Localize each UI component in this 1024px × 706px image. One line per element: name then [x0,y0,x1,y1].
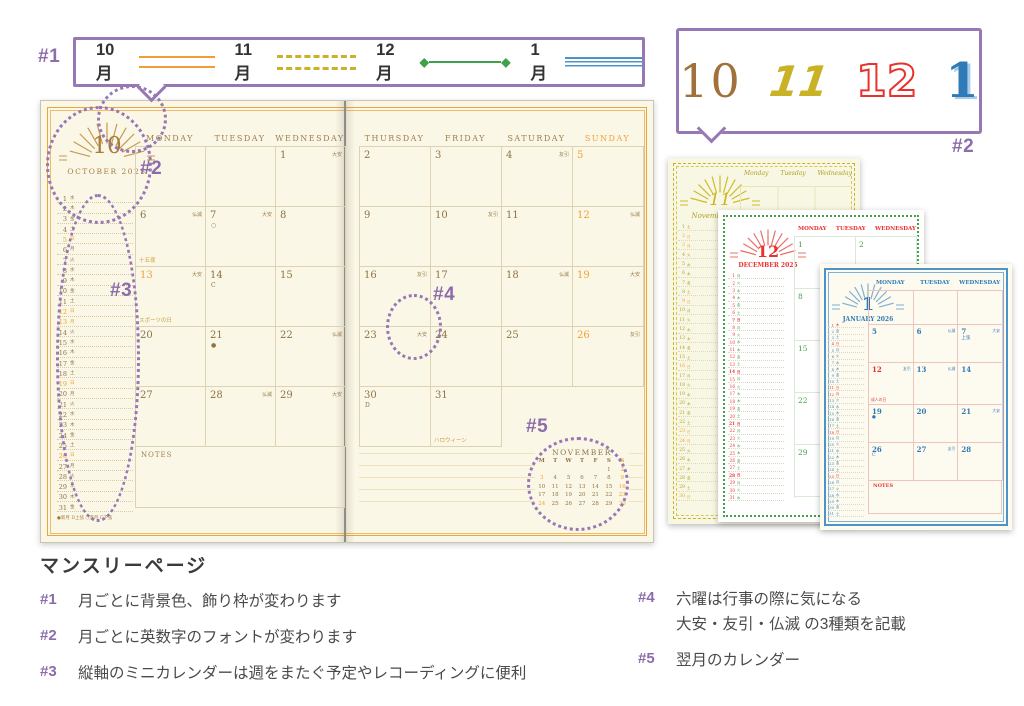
mini-day-number: 24 [57,433,67,440]
mini-day-weekday: 火 [687,383,691,388]
mini-day-weekday: 木 [836,499,839,503]
mini-day-weekday: 金 [737,303,740,308]
mini-day-row: 20土 [728,412,784,419]
mini-day-weekday: 木 [687,402,691,407]
mini-day-row: 16火 [728,383,784,390]
mini-day-weekday: 水 [687,263,691,268]
mini-day-number: 16 [828,418,834,422]
mini-day-weekday: 水 [737,444,740,449]
rokuyo-label: 大安 [630,271,640,278]
mini-day-number: 22 [57,412,67,419]
weekday-headers-left: MONDAYTUESDAYWEDNESDAY [135,134,345,143]
mini-day-weekday: 火 [70,402,75,408]
mini-day-number: 10 [678,309,685,314]
mini-day-row: 7火 [57,255,133,265]
mini-day-weekday: 水 [737,496,740,501]
mini-day-weekday: 金 [70,433,75,439]
day-note: 十五夜 [139,256,156,264]
mini-day-weekday: 火 [70,258,75,264]
next-month-day: 13 [575,483,588,492]
calendar-cell: 20 [136,327,206,387]
mini-day-number: 9 [728,333,735,337]
december-header: WEDNESDAY [875,226,916,232]
mini-day-weekday: 日 [70,453,75,459]
moon-phase-legend: ●新月 D上弦 ○満月 C下弦 [57,515,112,521]
mini-day-weekday: 土 [687,225,691,230]
mini-day-number: 20 [57,391,67,398]
legend-item: 11月 [235,41,357,84]
next-month-day: 7 [589,474,602,483]
description-item-text: 縦軸のミニカレンダーは週をまたぐ予定やレコーディングに便利 [78,662,526,687]
mini-day-number: 18 [828,431,834,435]
description-item: #4六曜は行事の際に気になる大安・友引・仏滅 の3種類を記載 [638,588,906,638]
description-item-text: 翌月のカレンダー [676,649,800,674]
date-number: 30 [364,390,377,401]
next-month-day: 17 [535,491,548,500]
mini-day-row: 31水 [728,494,784,501]
empty [589,466,602,475]
mini-day-number: 31 [57,505,67,512]
january-page: 1 JANUARY 2026 MONDAYTUESDAYWEDNESDAY 56… [820,264,1012,530]
next-month-day: 29 [602,500,615,509]
side-date: 2 [859,240,864,249]
calendar-cell: 22仏滅 [276,327,346,387]
mini-day-weekday: 日 [687,235,691,240]
mini-day-weekday: 月 [70,464,75,470]
mini-day-number: 25 [828,475,834,479]
mini-day-number: 19 [828,437,834,441]
calendar-cell: 13大安スポーツの日 [136,267,206,327]
date-number: 2 [364,150,370,161]
mini-day-number: 23 [57,422,67,429]
mini-day-weekday: 土 [836,512,839,516]
calendar-cell: 16友引 [360,267,431,327]
mini-day-number: 21 [57,402,67,409]
mini-day-number: 8 [828,368,834,372]
next-month-day: 22 [602,491,615,500]
mini-day-row: 11木 [728,346,784,353]
date-number: 3 [435,150,441,161]
mini-day-number: 2 [678,235,685,240]
mini-day-weekday: 月 [687,439,691,444]
date-number: 20 [917,407,927,416]
mini-day-weekday: 火 [737,385,740,390]
mini-day-number: 19 [678,393,685,398]
mini-day-number: 11 [728,348,735,352]
calendar-cell: 27 [136,387,206,447]
next-month-day: 9 [616,474,629,483]
next-month-day: 12 [562,483,575,492]
mini-day-number: 21 [828,449,834,453]
mini-day-number: 14 [728,370,735,374]
date-number: 22 [280,330,293,341]
description-item-number: #4 [638,588,663,638]
mini-day-weekday: 月 [687,374,691,379]
mini-day-weekday: 月 [737,481,740,486]
mini-day-number: 25 [678,449,685,454]
mini-day-row: 12日 [57,306,133,316]
mini-day-row: 17水 [728,390,784,397]
date-number: 23 [364,330,377,341]
rokuyo-label: 仏滅 [262,391,272,398]
mini-day-weekday: 日 [836,430,839,434]
mini-day-weekday: 水 [70,484,75,490]
mini-day-number: 7 [828,361,834,365]
description-item-number: #2 [40,626,65,651]
mini-day-weekday: 金 [70,361,75,367]
mini-day-weekday: 金 [687,476,691,481]
mini-day-number: 1 [678,226,685,231]
mini-day-number: 26 [728,459,735,463]
january-header: WEDNESDAY [957,280,1002,286]
mini-day-weekday: 水 [836,405,839,409]
next-month-day: 6 [575,474,588,483]
mini-day-row: 29水 [57,481,133,491]
mini-day-weekday: 金 [687,411,691,416]
mini-day-weekday: 土 [836,468,839,472]
notes-box: NOTES [135,446,345,508]
page: { "colors":{"purple":"#9678b4","purple_t… [0,0,1024,706]
line-bar [429,61,501,64]
date-number: 5 [872,327,877,336]
mini-day-number: 10 [728,341,735,345]
font-sample-bubble: 1011121 [676,28,982,134]
mini-day-number: 24 [728,444,735,448]
calendar-cell [206,147,276,207]
mini-day-number: 13 [678,337,685,342]
mini-day-weekday: 日 [737,370,740,375]
mini-day-number: 20 [728,415,735,419]
annotation-label-2b: #2 [952,136,974,158]
legend-month-label: 11月 [235,41,269,84]
mini-day-row: 18木 [728,398,784,405]
mini-day-number: 30 [828,506,834,510]
mini-day-row: 13月 [57,317,133,327]
rokuyo-label: 仏滅 [332,331,342,338]
weekday-header: FRIDAY [430,134,501,143]
calendar-cell: 14 [958,363,1003,405]
mini-day-weekday: 日 [836,474,839,478]
next-month-day: 27 [575,500,588,509]
mini-day-weekday: 金 [70,505,75,511]
mini-day-weekday: 土 [70,299,75,305]
calendar-cell: 7大安○ [206,207,276,267]
mini-day-number: 7 [57,258,67,265]
next-month-day: 26 [562,500,575,509]
green-diamond-line-icon: ◆◆ [420,61,511,64]
mini-day-weekday: 土 [687,356,691,361]
mini-day-number: 28 [828,494,834,498]
mini-day-number: 16 [57,350,67,357]
mini-day-weekday: 火 [687,318,691,323]
calendar-cell: 11 [502,207,573,267]
mini-day-weekday: 火 [737,436,740,441]
mini-day-weekday: 日 [836,342,839,346]
mini-day-weekday: 木 [70,278,75,284]
calendar-cell: 25 [502,327,573,387]
mini-day-weekday: 土 [70,371,75,377]
january-mini-list: 1木2金3土4日5月6火7水8木9金10土11日12月13火14水15木16金1… [828,322,864,517]
mini-day-row: 4土 [57,224,133,234]
mini-day-row: 27土 [728,464,784,471]
mini-day-row: 25木 [728,449,784,456]
font-sample-10: 10 [679,54,742,108]
next-month-day: 11 [548,483,561,492]
mini-day-weekday: 日 [737,473,740,478]
mini-day-number: 13 [57,319,67,326]
mini-day-weekday: 水 [737,392,740,397]
annotation-label-1: #1 [38,46,60,68]
date-number: 1 [280,150,286,161]
mini-day-number: 3 [728,289,735,293]
font-sample-12: 12 [856,56,917,107]
mini-day-weekday: 水 [737,289,740,294]
description-item: #2月ごとに英数字のフォントが変わります [40,626,526,651]
mini-day-weekday: 土 [737,466,740,471]
november-header: Tuesday [780,170,805,177]
day-note: ハロウィーン [434,436,467,444]
date-number: 16 [364,270,377,281]
mini-day-number: 11 [678,319,685,324]
next-month-header: W [562,457,575,466]
day-note: スポーツの日 [139,316,172,324]
mini-day-weekday: 日 [836,386,839,390]
empty [575,466,588,475]
mini-day-row: 16木 [57,347,133,357]
mini-day-number: 17 [678,375,685,380]
mini-day-weekday: 木 [836,411,839,415]
mini-day-number: 29 [678,486,685,491]
mini-day-number: 1 [728,274,735,278]
december-headers: MONDAYTUESDAYWEDNESDAY [798,226,916,232]
date-number: 6 [917,327,922,336]
next-month-day: 15 [602,483,615,492]
next-month-day: 14 [589,483,602,492]
mini-day-number: 22 [728,429,735,433]
next-month-day: 23 [616,491,629,500]
mini-day-weekday: 月 [836,480,839,484]
calendar-cell: 5 [869,325,914,363]
rokuyo-label: 友引 [903,366,911,372]
description-item-text: 六曜は行事の際に気になる大安・友引・仏滅 の3種類を記載 [676,588,906,638]
mini-day-number: 1 [828,324,834,328]
mini-day-row: 14火 [57,327,133,337]
mini-day-number: 15 [728,378,735,382]
annotation-label-4: #4 [433,284,455,306]
mini-day-weekday: 火 [836,398,839,402]
side-date: 15 [798,344,808,353]
rokuyo-label: 仏滅 [948,366,956,372]
mini-day-weekday: 土 [737,414,740,419]
calendar-cell: 4友引 [502,147,573,207]
mini-day-number: 12 [678,328,685,333]
mini-day-number: 27 [728,466,735,470]
next-month-day: 4 [548,474,561,483]
next-month-day: 10 [535,483,548,492]
date-number: 10 [435,210,448,221]
mini-day-row: 27月 [57,461,133,471]
mini-day-weekday: 金 [836,505,839,509]
mini-day-number: 18 [678,384,685,389]
mini-day-weekday: 水 [687,328,691,333]
mini-day-weekday: 日 [70,309,75,315]
mini-day-weekday: 金 [836,373,839,377]
calendar-cell: 24 [431,327,502,387]
mini-day-weekday: 日 [687,300,691,305]
next-month-title: NOVEMBER [535,448,629,457]
mini-day-weekday: 水 [687,393,691,398]
mini-day-number: 19 [57,381,67,388]
date-number: 25 [506,330,519,341]
calendar-cell: 31ハロウィーン [431,387,502,447]
calendar-cell [958,291,1003,325]
december-mini-list: 1月2火3水4木5金6土7日8月9火10水11木12金13土14日15月16火1… [728,272,784,501]
mini-day-row: 19日 [57,378,133,388]
mini-day-number: 5 [678,263,685,268]
mini-day-number: 21 [678,412,685,417]
legend-month-label: 12月 [376,41,410,84]
description-list-right: #4六曜は行事の際に気になる大安・友引・仏滅 の3種類を記載#5翌月のカレンダー [638,588,906,673]
weekday-header: WEDNESDAY [275,134,345,143]
mini-day-number: 14 [57,330,67,337]
mini-day-number: 5 [728,304,735,308]
description-item-number: #3 [40,662,65,687]
date-number: 24 [435,330,448,341]
november-header: Monday [744,170,768,177]
mini-day-number: 3 [57,216,67,223]
date-number: 12 [872,365,882,374]
rokuyo-label: 友引 [488,211,498,218]
calendar-cell: 15 [276,267,346,327]
mini-day-row: 31土 [828,511,864,517]
mini-day-number: 6 [678,272,685,277]
mini-day-weekday: 火 [737,281,740,286]
mini-day-row: 5日 [57,234,133,244]
empty [535,466,548,475]
date-number: 28 [210,390,223,401]
mini-day-number: 24 [678,440,685,445]
mini-day-row: 4木 [728,294,784,301]
mini-day-weekday: 土 [687,290,691,295]
mini-day-weekday: 火 [70,474,75,480]
next-month-day: 25 [548,500,561,509]
mini-day-number: 23 [728,437,735,441]
date-number: 13 [140,270,153,281]
mini-day-weekday: 水 [737,340,740,345]
mini-day-weekday: 土 [70,443,75,449]
mini-day-number: 5 [57,237,67,244]
mini-day-number: 11 [57,299,67,306]
mini-day-weekday: 金 [836,417,839,421]
mini-day-number: 10 [57,288,67,295]
moon-icon: ○ [211,222,216,229]
calendar-cell: 20 [914,405,959,443]
date-number: 26 [577,330,590,341]
rokuyo-label: 友引 [559,151,569,158]
weekday-header: TUESDAY [205,134,275,143]
mini-day-row: 2木 [57,203,133,213]
mini-day-weekday: 土 [836,335,839,339]
description-item-text: 月ごとに背景色、飾り枠が変わります [78,590,342,615]
date-number: 9 [364,210,370,221]
mini-day-number: 16 [678,365,685,370]
mini-day-weekday: 日 [687,365,691,370]
rokuyo-label: 仏滅 [192,211,202,218]
calendar-cell: 9 [360,207,431,267]
november-headers: MondayTuesdayWednesday [744,170,852,177]
mini-day-number: 28 [728,474,735,478]
mini-day-number: 12 [828,393,834,397]
mini-day-number: 16 [728,385,735,389]
next-month-header: M [535,457,548,466]
mini-day-row: 22水 [57,409,133,419]
calendar-cell: 6仏滅 [914,325,959,363]
weekday-headers-right: THURSDAYFRIDAYSATURDAYSUNDAY [359,134,643,143]
rokuyo-label: 大安 [192,271,202,278]
mini-day-number: 12 [57,309,67,316]
mini-day-number: 26 [828,481,834,485]
date-number: 28 [961,445,971,454]
mini-day-row: 1月 [728,272,784,279]
empty [562,466,575,475]
rokuyo-label: 大安 [262,211,272,218]
mini-day-weekday: 月 [70,320,75,326]
mini-day-weekday: 水 [70,196,75,202]
next-month-header: T [548,457,561,466]
next-month-day: 3 [535,474,548,483]
mini-day-weekday: 木 [737,451,740,456]
mini-day-number: 27 [828,487,834,491]
mini-day-weekday: 水 [70,340,75,346]
legend-month-label: 10月 [96,41,130,84]
mini-day-row: 3金 [57,214,133,224]
mini-day-number: 7 [678,282,685,287]
mini-day-weekday: 土 [737,362,740,367]
next-month-day: 2 [616,466,629,475]
mini-day-weekday: 水 [836,493,839,497]
november-header: Wednesday [818,170,852,177]
mini-day-row: 26金 [728,457,784,464]
mini-day-number: 17 [728,392,735,396]
mini-day-number: 26 [57,453,67,460]
mini-day-weekday: 金 [737,407,740,412]
next-month-header: T [575,457,588,466]
mini-day-row: 30火 [728,486,784,493]
calendar-cell: 12友引成人の日 [869,363,914,405]
mini-day-weekday: 土 [737,311,740,316]
date-number: 5 [577,150,583,161]
mini-day-weekday: 土 [70,227,75,233]
next-month-day: 18 [548,491,561,500]
mini-day-number: 4 [57,227,67,234]
mini-day-weekday: 木 [687,337,691,342]
date-number: 8 [280,210,286,221]
mini-day-number: 7 [728,319,735,323]
next-month-day: 21 [589,491,602,500]
mini-day-number: 5 [828,349,834,353]
january-grid: 56仏滅7大安上弦12友引成人の日13仏滅1419●2021大安26C27友引2… [868,290,1003,481]
next-month-day: 28 [589,500,602,509]
mini-day-weekday: 月 [737,429,740,434]
mini-day-number: 31 [728,496,735,500]
mini-day-weekday: 火 [737,488,740,493]
mini-day-weekday: 日 [687,430,691,435]
mini-day-weekday: 水 [70,412,75,418]
mini-day-row: 1水 [57,193,133,203]
mini-day-number: 10 [828,380,834,384]
calendar-cell: 30D [360,387,431,447]
calendar-cell: 3 [431,147,502,207]
